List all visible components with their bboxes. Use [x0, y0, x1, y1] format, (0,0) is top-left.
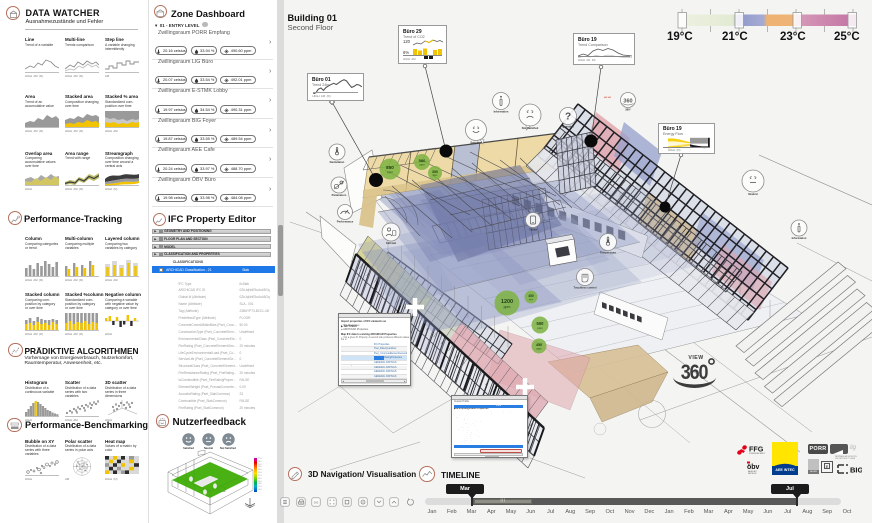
svg-text:Tablet: Tablet — [529, 228, 537, 232]
svg-text:öbv: öbv — [747, 464, 760, 471]
svg-text:Parameters: Parameters — [332, 193, 347, 197]
svg-text:Neutral: Neutral — [748, 192, 758, 196]
svg-text:Declaration: Declaration — [330, 160, 345, 164]
svg-text:ppm: ppm — [433, 175, 438, 177]
svg-text:360: 360 — [681, 361, 709, 385]
svg-text:360: 360 — [314, 500, 319, 504]
svg-text:ppm: ppm — [529, 299, 533, 301]
svg-text:Temperature: Temperature — [600, 251, 617, 255]
svg-text:Information: Information — [494, 110, 509, 114]
svg-text:BIG: BIG — [850, 466, 862, 475]
svg-text:ppm: ppm — [537, 327, 543, 330]
svg-text:360: 360 — [623, 98, 632, 104]
svg-text:Not Satisfied: Not Satisfied — [522, 126, 539, 130]
svg-text:FORSCHUNG WIRKT.: FORSCHUNG WIRKT. — [749, 453, 766, 455]
svg-text:━━ ━━: ━━ ━━ — [603, 96, 611, 99]
svg-text:Question: Question — [562, 125, 574, 129]
svg-text:Satisfied: Satisfied — [470, 141, 482, 145]
svg-text:Touchless control: Touchless control — [574, 286, 597, 290]
svg-text:ppm: ppm — [387, 170, 393, 174]
svg-text:586: 586 — [419, 158, 426, 163]
svg-text:450: 450 — [528, 294, 534, 298]
svg-text:ppm: ppm — [504, 305, 511, 309]
svg-text:ppm: ppm — [419, 164, 424, 167]
svg-text:Information: Information — [792, 236, 807, 240]
svg-text:350: 350 — [432, 170, 438, 174]
svg-text:?: ? — [565, 112, 571, 123]
svg-text:Performance: Performance — [337, 220, 354, 224]
svg-text:360°: 360° — [625, 108, 631, 112]
svg-text:Call taxi: Call taxi — [386, 241, 397, 245]
svg-text:500: 500 — [537, 321, 545, 326]
svg-text:450: 450 — [536, 343, 542, 347]
svg-text:WEITBLICK: WEITBLICK — [748, 473, 758, 475]
svg-text:ppm: ppm — [537, 347, 542, 350]
svg-text:FFG: FFG — [749, 445, 764, 454]
